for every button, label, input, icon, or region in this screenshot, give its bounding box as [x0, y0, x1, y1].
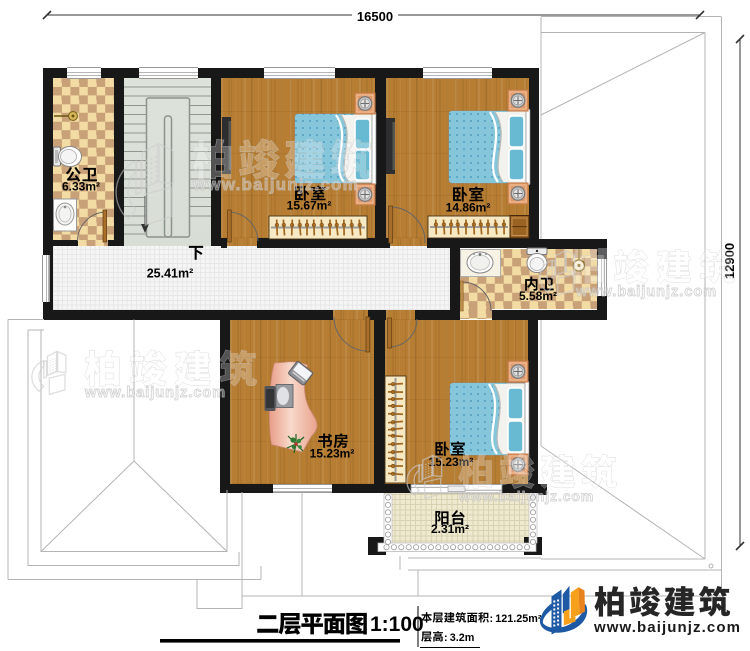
svg-text:5.58m²: 5.58m² [519, 289, 557, 303]
svg-text:www.baijunjz.com: www.baijunjz.com [84, 385, 226, 401]
svg-text:www.baijunjz.com: www.baijunjz.com [458, 488, 594, 504]
svg-text:14.86m²: 14.86m² [446, 201, 491, 215]
svg-text:www.baijunjz.com: www.baijunjz.com [192, 175, 359, 194]
svg-text:www.baijunjz.com: www.baijunjz.com [593, 619, 741, 636]
svg-text:www.baijunjz.com: www.baijunjz.com [575, 284, 717, 300]
svg-text:2.31m²: 2.31m² [431, 522, 469, 536]
svg-text:15.67m²: 15.67m² [287, 199, 332, 213]
svg-text:25.41m²: 25.41m² [147, 267, 194, 281]
svg-text:: 3.2m: : 3.2m [444, 632, 474, 644]
svg-text:1:100: 1:100 [370, 613, 424, 636]
svg-text:6.33m²: 6.33m² [62, 180, 100, 194]
svg-text:: 121.25m²: : 121.25m² [490, 613, 542, 625]
svg-text:15.23m²: 15.23m² [310, 447, 355, 461]
svg-text:16500: 16500 [357, 9, 393, 24]
